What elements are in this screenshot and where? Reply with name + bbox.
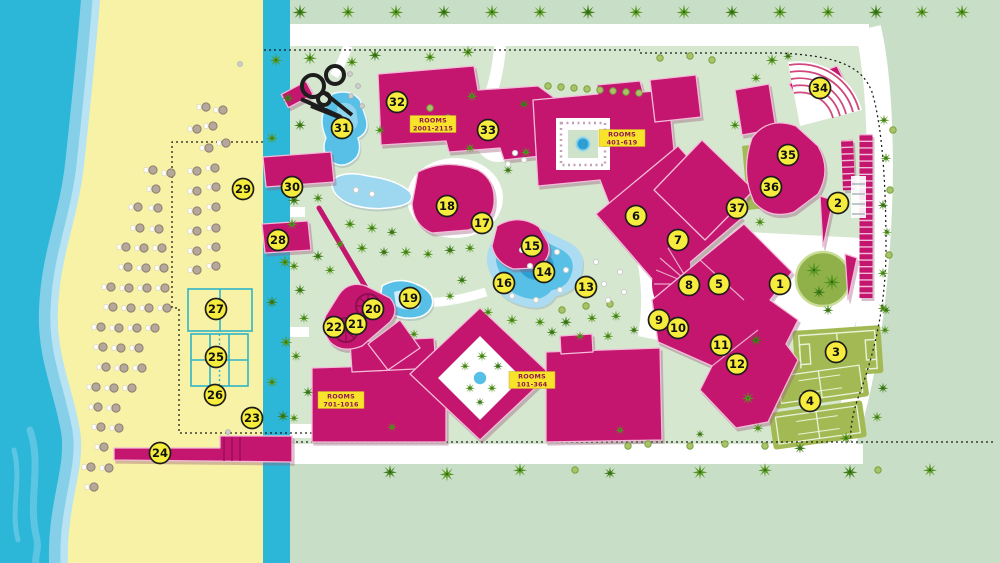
beach-umbrella-icon xyxy=(156,284,169,292)
beach-umbrella-icon xyxy=(117,243,130,251)
beach-umbrella-icon xyxy=(87,383,100,391)
beach-umbrella-icon xyxy=(204,122,217,130)
map-marker-2[interactable]: 2 xyxy=(828,193,849,214)
bush-icon xyxy=(687,443,693,449)
beach-umbrella-icon xyxy=(197,103,210,111)
rooms-label-line1: ROOMS xyxy=(518,373,546,381)
bush-icon xyxy=(762,443,768,449)
wave-line xyxy=(14,450,18,540)
roundabout-garden xyxy=(796,252,850,306)
bush-icon xyxy=(887,187,893,193)
beach-umbrella-icon xyxy=(95,443,108,451)
lounger-icon xyxy=(601,281,606,286)
marker-number: 26 xyxy=(207,388,223,402)
beach-umbrella-icon xyxy=(162,169,175,177)
courtyard-pool xyxy=(577,138,590,151)
beach-umbrella-icon xyxy=(153,244,166,252)
bush-icon xyxy=(559,307,565,313)
rooms-label-701-1016: ROOMS 701-1016 xyxy=(318,392,364,409)
beach-umbrella-icon xyxy=(89,403,102,411)
bush-icon xyxy=(886,252,892,258)
map-marker-8[interactable]: 8 xyxy=(679,275,700,296)
beach-umbrella-icon xyxy=(94,343,107,351)
beach-umbrella-icon xyxy=(188,247,201,255)
stone-icon xyxy=(226,430,231,435)
lounger-icon xyxy=(505,161,510,166)
lounger-icon xyxy=(605,297,610,302)
beach-umbrella-icon xyxy=(188,187,201,195)
marker-number: 13 xyxy=(578,280,594,294)
bush-icon xyxy=(875,467,881,473)
beach-umbrella-icon xyxy=(119,263,132,271)
marker-number: 14 xyxy=(536,265,552,279)
beach-umbrella-icon xyxy=(82,463,95,471)
rooms-label-line1: ROOMS xyxy=(608,131,636,139)
beach-umbrella-icon xyxy=(158,304,171,312)
beach-umbrella-icon xyxy=(207,243,220,251)
lounger-icon xyxy=(533,297,538,302)
marker-number: 15 xyxy=(524,239,540,253)
map-marker-31[interactable]: 31 xyxy=(332,118,353,139)
map-marker-25[interactable]: 25 xyxy=(206,347,227,368)
bush-icon xyxy=(687,53,693,59)
map-marker-16[interactable]: 16 xyxy=(494,273,515,294)
beach-umbrella-icon xyxy=(207,224,220,232)
beach-umbrella-icon xyxy=(133,364,146,372)
beach-umbrella-icon xyxy=(200,144,213,152)
beach-umbrella-icon xyxy=(115,364,128,372)
marker-number: 27 xyxy=(208,302,224,316)
beach-umbrella-icon xyxy=(135,244,148,252)
map-marker-1[interactable]: 1 xyxy=(770,274,791,295)
beach-umbrella-icon xyxy=(144,166,157,174)
map-marker-37[interactable]: 37 xyxy=(727,198,748,219)
bush-icon xyxy=(571,85,577,91)
lounger-icon xyxy=(554,249,559,254)
beach-umbrella-icon xyxy=(97,363,110,371)
marker-number: 31 xyxy=(334,121,350,135)
bush-icon xyxy=(623,89,629,95)
beach-umbrella-icon xyxy=(214,106,227,114)
map-marker-7[interactable]: 7 xyxy=(668,230,689,251)
map-marker-34[interactable]: 34 xyxy=(810,78,831,99)
map-marker-17[interactable]: 17 xyxy=(472,213,493,234)
map-marker-36[interactable]: 36 xyxy=(761,177,782,198)
marker-number: 18 xyxy=(439,199,455,213)
map-marker-6[interactable]: 6 xyxy=(626,206,647,227)
rooms-label-line2: 2001-2115 xyxy=(413,125,453,133)
rooms-label-line2: 401-619 xyxy=(607,139,638,147)
marker-number: 8 xyxy=(685,278,693,292)
map-marker-30[interactable]: 30 xyxy=(282,177,303,198)
map-marker-11[interactable]: 11 xyxy=(711,335,732,356)
beach-umbrella-icon xyxy=(130,344,143,352)
map-marker-29[interactable]: 29 xyxy=(233,179,254,200)
stone-icon xyxy=(238,62,243,67)
beach-umbrella-icon xyxy=(110,324,123,332)
beach-umbrella-icon xyxy=(138,284,151,292)
beach-umbrella-icon xyxy=(147,185,160,193)
bush-icon xyxy=(558,84,564,90)
rooms-label-line1: ROOMS xyxy=(327,393,355,401)
bush-icon xyxy=(636,90,642,96)
beach-umbrella-icon xyxy=(149,204,162,212)
beach-umbrella-icon xyxy=(92,323,105,331)
beach-umbrella-icon xyxy=(110,424,123,432)
bush-icon xyxy=(625,443,631,449)
bush-icon xyxy=(427,105,433,111)
stone-icon xyxy=(349,94,354,99)
marker-number: 4 xyxy=(806,394,814,408)
marker-number: 5 xyxy=(715,277,723,291)
marker-number: 32 xyxy=(389,95,405,109)
map-marker-13[interactable]: 13 xyxy=(576,277,597,298)
top-road xyxy=(263,24,869,46)
beach-umbrella-icon xyxy=(102,283,115,291)
map-marker-4[interactable]: 4 xyxy=(800,391,821,412)
lounger-icon xyxy=(521,157,526,162)
map-marker-33[interactable]: 33 xyxy=(478,120,499,141)
marker-number: 24 xyxy=(152,446,168,460)
lounger-icon xyxy=(353,187,358,192)
map-marker-14[interactable]: 14 xyxy=(534,262,555,283)
marker-number: 11 xyxy=(713,338,729,352)
marker-number: 7 xyxy=(674,233,682,247)
bush-icon xyxy=(610,88,616,94)
beach-umbrella-icon xyxy=(131,224,144,232)
beach-umbrella-icon xyxy=(107,404,120,412)
map-marker-10[interactable]: 10 xyxy=(668,318,689,339)
map-marker-5[interactable]: 5 xyxy=(709,274,730,295)
lounger-icon xyxy=(621,289,626,294)
map-marker-26[interactable]: 26 xyxy=(205,385,226,406)
lounger-icon xyxy=(369,191,374,196)
beach-umbrella-icon xyxy=(100,464,113,472)
marker-number: 1 xyxy=(776,277,784,291)
marker-number: 3 xyxy=(832,345,840,359)
beach-umbrella-icon xyxy=(188,167,201,175)
beach-umbrella-icon xyxy=(137,264,150,272)
map-marker-32[interactable]: 32 xyxy=(387,92,408,113)
marker-number: 28 xyxy=(270,233,286,247)
bottom-road xyxy=(263,444,863,464)
marker-number: 10 xyxy=(670,321,686,335)
map-marker-28[interactable]: 28 xyxy=(268,230,289,251)
beach-umbrella-icon xyxy=(104,303,117,311)
beach-umbrella-icon xyxy=(188,266,201,274)
marker-number: 19 xyxy=(402,291,418,305)
beach-umbrella-icon xyxy=(129,203,142,211)
stone-icon xyxy=(360,104,365,109)
beach-umbrella-icon xyxy=(188,227,201,235)
map-marker-27[interactable]: 27 xyxy=(206,299,227,320)
beach-umbrella-icon xyxy=(92,423,105,431)
beach-umbrella-icon xyxy=(155,264,168,272)
lounger-icon xyxy=(593,259,598,264)
lounger-icon xyxy=(527,263,532,268)
beach-umbrella-icon xyxy=(146,324,159,332)
marker-number: 23 xyxy=(244,411,260,425)
beach-umbrella-icon xyxy=(123,384,136,392)
marker-number: 6 xyxy=(632,209,640,223)
beach-umbrella-icon xyxy=(188,207,201,215)
marker-number: 22 xyxy=(326,320,342,334)
lounger-icon xyxy=(563,267,568,272)
bush-icon xyxy=(584,86,590,92)
beach-umbrella-icon xyxy=(207,183,220,191)
beach-umbrella-icon xyxy=(112,344,125,352)
bush-icon xyxy=(645,441,651,447)
resort-map: ROOMS 2001-2115 ROOMS 401-619 ROOMS 101-… xyxy=(0,0,1000,563)
beach-umbrella-icon xyxy=(85,483,98,491)
rooms-label-line2: 701-1016 xyxy=(323,401,359,409)
marker-number: 29 xyxy=(235,182,251,196)
map-marker-21[interactable]: 21 xyxy=(346,314,367,335)
marker-number: 20 xyxy=(365,302,381,316)
marker-number: 21 xyxy=(348,317,364,331)
marker-number: 33 xyxy=(480,123,496,137)
map-marker-20[interactable]: 20 xyxy=(363,299,384,320)
rooms-label-401-619: ROOMS 401-619 xyxy=(599,130,645,147)
lounger-icon xyxy=(512,150,517,155)
stone-icon xyxy=(356,84,361,89)
map-marker-15[interactable]: 15 xyxy=(522,236,543,257)
map-marker-9[interactable]: 9 xyxy=(649,310,670,331)
lounger-icon xyxy=(617,269,622,274)
rooms-label-101-364: ROOMS 101-364 xyxy=(509,372,555,389)
beach-umbrella-icon xyxy=(120,284,133,292)
map-marker-22[interactable]: 22 xyxy=(324,317,345,338)
rooms-label-line1: ROOMS xyxy=(419,117,447,125)
marker-number: 2 xyxy=(834,196,842,210)
stone-icon xyxy=(348,72,353,77)
resort-map-page: ROOMS 2001-2115 ROOMS 401-619 ROOMS 101-… xyxy=(0,0,1000,563)
building-rooms-101-364 xyxy=(546,348,662,442)
marker-number: 30 xyxy=(284,180,300,194)
bush-icon xyxy=(583,303,589,309)
beach-umbrella-icon xyxy=(150,225,163,233)
beach-umbrella-icon xyxy=(140,304,153,312)
map-marker-23[interactable]: 23 xyxy=(242,408,263,429)
bush-icon xyxy=(597,87,603,93)
courtyard-pool xyxy=(473,371,487,385)
map-marker-19[interactable]: 19 xyxy=(400,288,421,309)
beach-umbrella-icon xyxy=(188,125,201,133)
beach-umbrella-icon xyxy=(105,384,118,392)
marker-number: 36 xyxy=(763,180,779,194)
bush-icon xyxy=(709,57,715,63)
bush-icon xyxy=(572,467,578,473)
map-marker-18[interactable]: 18 xyxy=(437,196,458,217)
rooms-label-2001-2115: ROOMS 2001-2115 xyxy=(410,116,456,133)
beach-umbrella-icon xyxy=(122,304,135,312)
bush-icon xyxy=(545,83,551,89)
bush-icon xyxy=(722,441,728,447)
map-marker-12[interactable]: 12 xyxy=(727,354,748,375)
marker-number: 37 xyxy=(729,201,745,215)
marker-number: 12 xyxy=(729,357,745,371)
marker-number: 9 xyxy=(655,313,663,327)
lounger-icon xyxy=(557,287,562,292)
marker-number: 17 xyxy=(474,216,490,230)
marker-number: 25 xyxy=(208,350,224,364)
lounger-icon xyxy=(509,293,514,298)
beach-umbrella-icon xyxy=(207,262,220,270)
beach-umbrella-icon xyxy=(128,324,141,332)
map-marker-3[interactable]: 3 xyxy=(826,342,847,363)
bush-icon xyxy=(890,127,896,133)
beach-umbrella-icon xyxy=(207,203,220,211)
shoreline xyxy=(0,0,290,563)
marker-number: 35 xyxy=(780,148,796,162)
map-marker-24[interactable]: 24 xyxy=(150,443,171,464)
beach-umbrella-icon xyxy=(217,139,230,147)
rooms-label-line2: 101-364 xyxy=(517,381,548,389)
bush-icon xyxy=(657,55,663,61)
marker-number: 34 xyxy=(812,81,828,95)
map-marker-35[interactable]: 35 xyxy=(778,145,799,166)
beach-umbrella-icon xyxy=(206,164,219,172)
marker-number: 16 xyxy=(496,276,512,290)
